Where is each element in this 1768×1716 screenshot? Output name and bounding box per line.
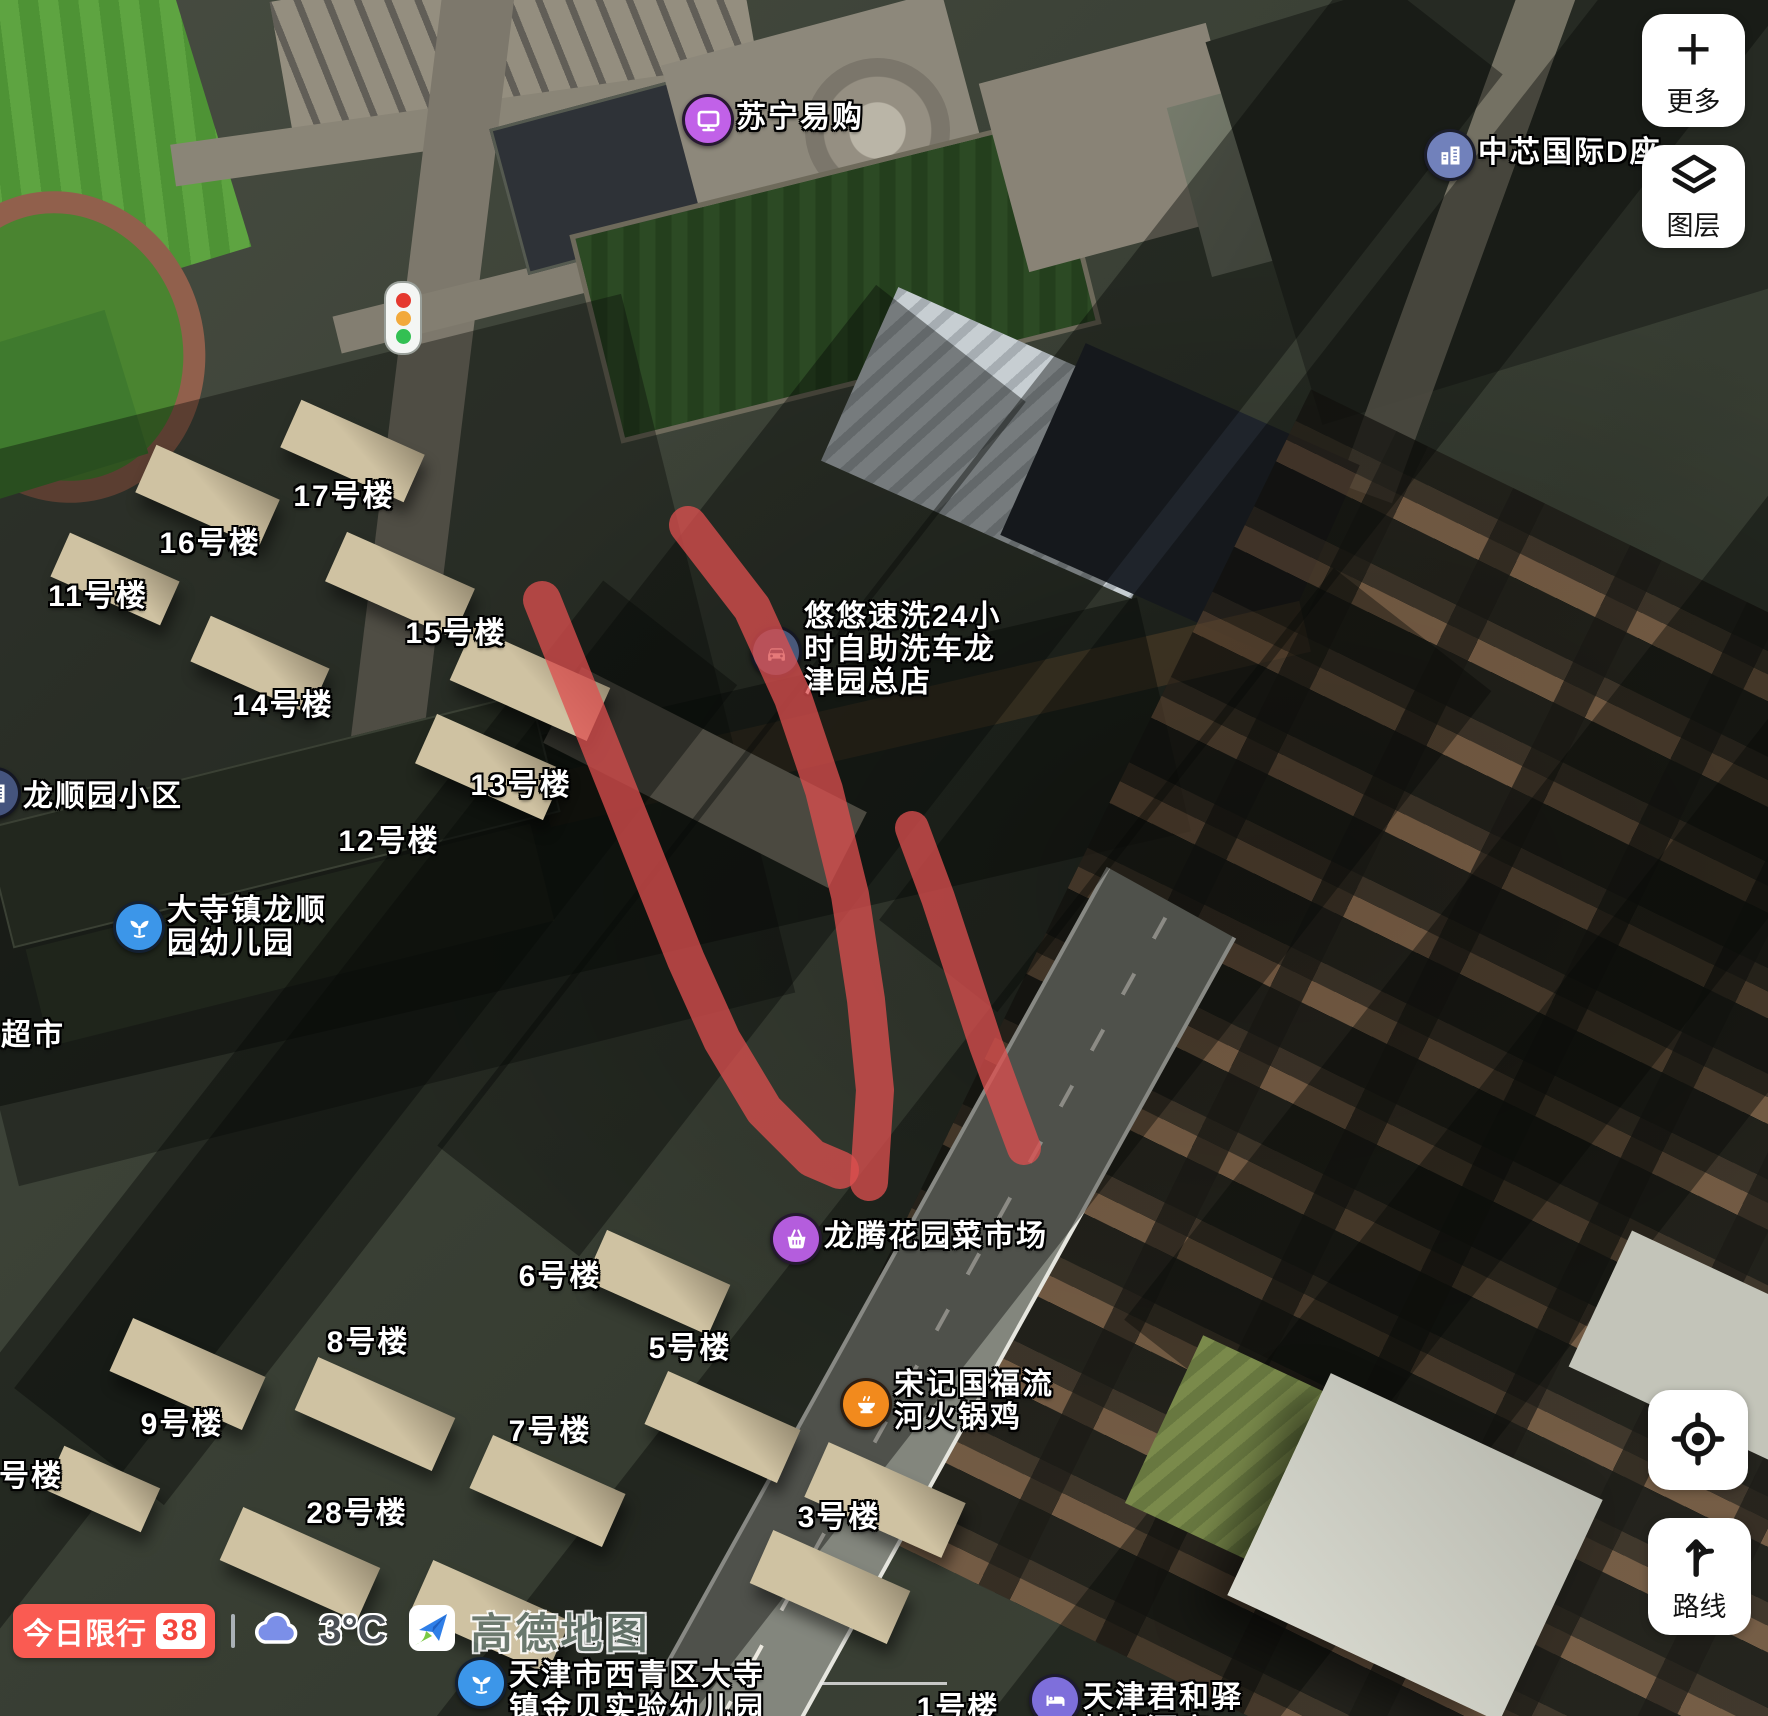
layers-icon — [1668, 151, 1720, 202]
temperature: 3°C — [319, 1608, 386, 1653]
building-label: 3号楼 — [798, 1492, 881, 1536]
traffic-restriction-badge[interactable]: 今日限行 38 — [13, 1604, 215, 1658]
traffic-light-red — [396, 293, 411, 308]
locate-icon — [1669, 1410, 1727, 1471]
building-label: 1号楼 — [917, 1683, 1000, 1716]
restriction-plates: 38 — [156, 1613, 205, 1649]
scale-bar — [820, 1682, 947, 1685]
amap-logo-icon — [409, 1605, 455, 1656]
building-label: 16号楼 — [159, 518, 260, 562]
layers-label: 图层 — [1667, 204, 1721, 243]
status-bar: 今日限行 38 3°C 高德地图 — [13, 1600, 651, 1661]
map-viewport[interactable]: 苏宁易购中芯国际D座悠悠速洗24小时自助洗车龙津园总店龙顺园小区大寺镇龙顺园幼儿… — [0, 0, 1768, 1716]
locate-button[interactable] — [1648, 1390, 1748, 1490]
traffic-light-icon — [384, 281, 422, 355]
building-label: 11号楼 — [48, 571, 148, 615]
more-label: 更多 — [1667, 80, 1721, 119]
divider — [231, 1614, 235, 1648]
building-label: 5号楼 — [649, 1323, 732, 1367]
building-label: 7号楼 — [509, 1406, 592, 1450]
traffic-light-amber — [396, 311, 411, 326]
route-label: 路线 — [1673, 1585, 1727, 1624]
cloud-icon — [251, 1608, 303, 1653]
building-label: 6号楼 — [519, 1251, 602, 1295]
plus-icon: + — [1675, 22, 1711, 78]
route-icon — [1675, 1530, 1725, 1583]
building-label: 号楼 — [0, 1451, 63, 1495]
amap-watermark: 高德地图 — [471, 1600, 651, 1661]
traffic-light-green — [396, 329, 411, 344]
route-button[interactable]: 路线 — [1648, 1518, 1751, 1635]
building-label: 9号楼 — [141, 1399, 224, 1443]
restriction-label: 今日限行 — [23, 1609, 147, 1653]
building-label: 13号楼 — [470, 760, 571, 804]
building-label-layer: 17号楼16号楼11号楼15号楼14号楼13号楼12号楼超市6号楼8号楼5号楼9… — [0, 0, 1768, 1716]
building-label: 15号楼 — [405, 608, 506, 652]
building-label: 12号楼 — [338, 816, 439, 860]
building-label: 8号楼 — [327, 1317, 410, 1361]
building-label: 14号楼 — [232, 680, 333, 724]
more-button[interactable]: + 更多 — [1642, 14, 1745, 127]
building-label: 28号楼 — [306, 1488, 407, 1532]
building-label: 超市 — [1, 1010, 65, 1054]
layers-button[interactable]: 图层 — [1642, 145, 1745, 248]
building-label: 17号楼 — [293, 471, 394, 515]
